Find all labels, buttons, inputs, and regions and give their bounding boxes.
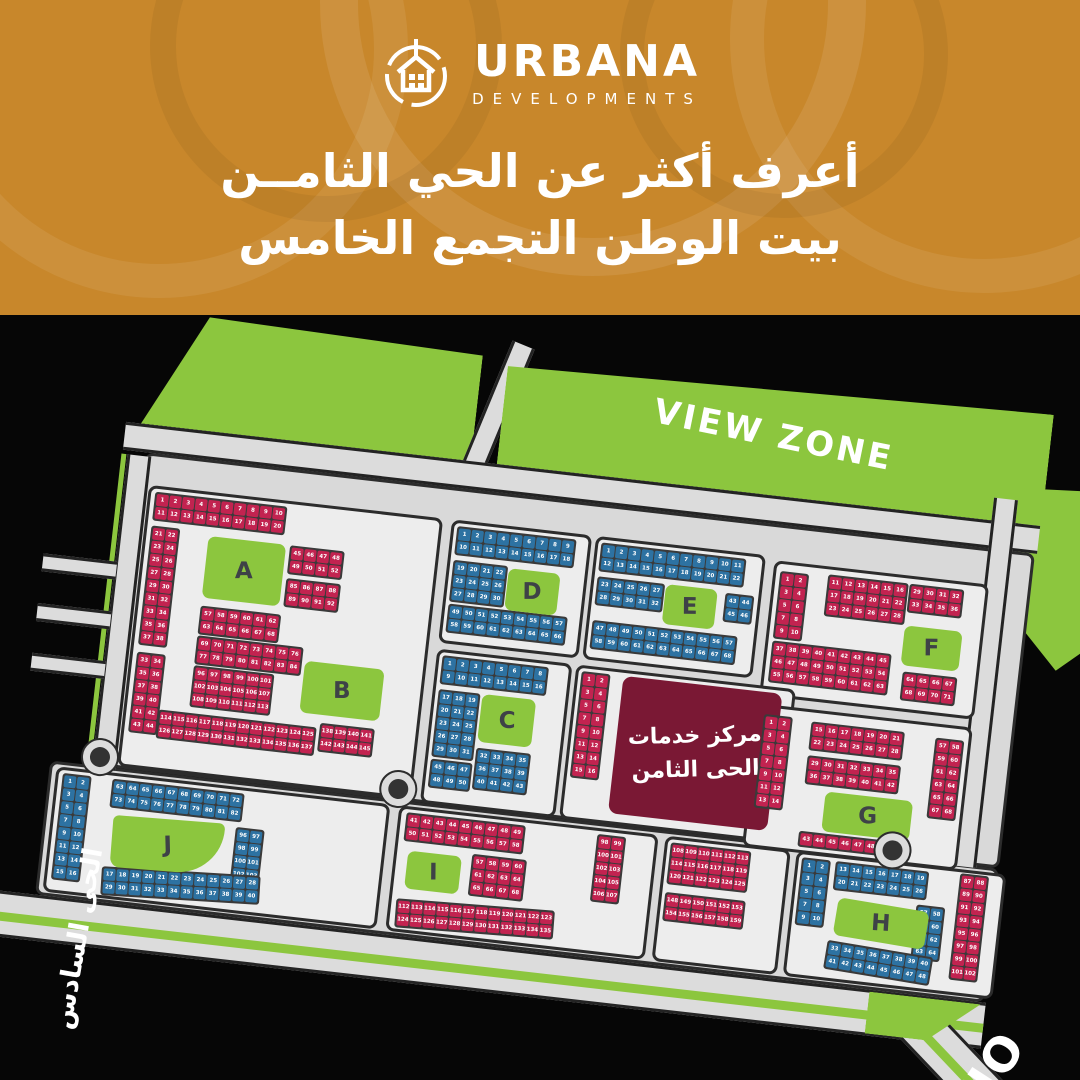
plot-cell: 26 — [220, 875, 233, 888]
plot-cell: 139 — [334, 726, 347, 739]
plot-cell: 123 — [275, 725, 288, 738]
plot-cell: 68 — [264, 628, 277, 641]
plot-cell: 2 — [794, 575, 807, 588]
plot-cell: 32 — [847, 762, 860, 775]
zone-label: H — [871, 910, 892, 937]
plot-cell: 6 — [666, 552, 679, 565]
plot-cell: 20 — [438, 704, 451, 717]
plot-cell: 107 — [605, 889, 618, 902]
plot-cell: 106 — [592, 888, 605, 901]
plot-cell: 112 — [723, 850, 736, 863]
plot-cell: 60 — [240, 612, 253, 625]
plot-cell: 64 — [669, 644, 682, 657]
map-world: VIEW ZONE — [0, 315, 1059, 1080]
plot-cell: 13 — [573, 751, 586, 764]
plot-cell: 81 — [215, 806, 228, 819]
plot-cell: 63 — [656, 642, 669, 655]
plot-cell: 7 — [679, 553, 692, 566]
plot-cell: 118 — [722, 863, 735, 876]
plot-cell: 12 — [770, 782, 783, 795]
plot-cell: 37 — [820, 772, 833, 785]
plot-cell: 120 — [668, 870, 681, 883]
plot-cell: 16 — [219, 514, 232, 527]
plot-cell: 44 — [739, 597, 752, 610]
plot-cell: 22 — [165, 529, 178, 542]
plot-cell: 81 — [248, 656, 261, 669]
plot-cell: 99 — [248, 844, 261, 857]
plot-cell: 117 — [462, 906, 475, 919]
plot-cell: 64 — [510, 873, 523, 886]
plot-cell: 4 — [641, 549, 654, 562]
zone-label: J — [163, 832, 172, 858]
plot-cell: 4 — [814, 874, 827, 887]
plot-cell: 63 — [113, 781, 126, 794]
plot-cell: 35 — [853, 946, 867, 960]
plot-cell: 58 — [809, 673, 822, 686]
plot-cell: 38 — [786, 644, 799, 657]
plot-cell: 71 — [941, 691, 954, 704]
plot-cell: 26 — [912, 885, 925, 898]
plot-cell: 70 — [928, 689, 941, 702]
plot-cell: 126 — [422, 915, 435, 928]
plot-cell: 32 — [157, 594, 170, 607]
plot-cell: 16 — [534, 550, 547, 563]
plot-cell: 101 — [246, 856, 259, 869]
plot-cell: 28 — [461, 733, 474, 746]
plot-cell: 82 — [261, 658, 274, 671]
plot-cell: 117 — [198, 716, 211, 729]
plot-cell: 43 — [800, 833, 813, 846]
plot-cell: 4 — [497, 533, 510, 546]
plot-cell: 35 — [180, 886, 193, 899]
plot-cell: 36 — [155, 620, 168, 633]
plot-cell: 115 — [436, 904, 449, 917]
plot-cell: 76 — [288, 648, 301, 661]
plot-cell: 55 — [770, 668, 783, 681]
plot-cell: 14 — [508, 547, 521, 560]
plot-cell: 15 — [206, 513, 219, 526]
plot-cell: 23 — [874, 881, 887, 894]
plot-cell: 128 — [448, 918, 461, 931]
plot-cell: 7 — [760, 755, 773, 768]
plot-cell: 18 — [116, 869, 129, 882]
plot-cell: 100 — [965, 954, 978, 967]
plot-cell: 45 — [876, 654, 889, 667]
plot-cell: 91 — [311, 596, 324, 609]
plot-cell: 46 — [737, 609, 750, 622]
plot-cell: 9 — [561, 540, 574, 553]
plot-cell: 128 — [184, 727, 197, 740]
plot-cell: 5 — [60, 801, 73, 814]
plot-cell: 53 — [501, 612, 514, 625]
plot-cell: 58 — [592, 635, 605, 648]
plot-cell: 27 — [650, 584, 663, 597]
plot-cell: 33 — [860, 763, 873, 776]
plot-cell: 16 — [893, 584, 906, 597]
plot-cell: 64 — [903, 674, 916, 687]
plot-cell: 38 — [833, 773, 846, 786]
plot-cell: 22 — [811, 737, 824, 750]
plot-cell: 136 — [287, 739, 300, 752]
plot-cell: 91 — [958, 901, 971, 914]
plot-cell: 25 — [624, 581, 637, 594]
plot-cell: 152 — [717, 900, 730, 913]
plot-cell: 8 — [246, 504, 259, 517]
plot-cell: 30 — [490, 592, 503, 605]
plot-cell: 49 — [510, 826, 523, 839]
plot-cell: 9 — [57, 827, 70, 840]
plot-cell: 7 — [233, 503, 246, 516]
plot-cell: 100 — [246, 673, 259, 686]
plot-cell: 29 — [910, 586, 923, 599]
plot-cell: 25 — [207, 875, 220, 888]
plot-cell: 65 — [470, 882, 483, 895]
plot-cell: 30 — [115, 882, 128, 895]
plot-cell: 23 — [436, 717, 449, 730]
plot-cell: 112 — [397, 900, 410, 913]
plot-cell: 50 — [406, 827, 419, 840]
plot-cell: 122 — [527, 911, 540, 924]
plot-cell: 21 — [152, 528, 165, 541]
plot-cell: 130 — [209, 730, 222, 743]
plot-cell: 39 — [514, 767, 527, 780]
plot-cell: 54 — [457, 833, 470, 846]
zone-F: F — [901, 625, 963, 671]
plot-cell: 157 — [703, 911, 716, 924]
plot-cell: 97 — [207, 669, 220, 682]
plot-cell: 154 — [664, 907, 677, 920]
plot-cell: 18 — [560, 553, 573, 566]
plot-cell: 30 — [159, 581, 172, 594]
plot-cell: 12 — [480, 675, 493, 688]
plot-cell: 36 — [475, 763, 488, 776]
plot-cluster: 323334353637383940414243 — [472, 748, 531, 796]
plot-cell: 109 — [684, 846, 697, 859]
plot-cell: 40 — [858, 776, 871, 789]
plot-cell: 72 — [229, 794, 242, 807]
plot-cell: 41 — [871, 778, 884, 791]
plot-cell: 96 — [968, 929, 981, 942]
plot-cell: 74 — [262, 645, 275, 658]
plot-cell: 35 — [935, 602, 948, 615]
plot-cell: 39 — [904, 955, 918, 969]
plot-cell: 10 — [456, 541, 469, 554]
plot-cell: 8 — [591, 713, 604, 726]
plot-cell: 4 — [776, 731, 789, 744]
plot-cell: 13 — [493, 676, 506, 689]
urbana-house-logo-icon — [378, 34, 454, 114]
plot-cell: 11 — [829, 577, 842, 590]
plot-cell: 6 — [508, 665, 521, 678]
plot-cell: 41 — [132, 705, 145, 718]
plot-cell: 41 — [407, 814, 420, 827]
zone-A: A — [202, 536, 287, 606]
plot-cell: 57 — [201, 608, 214, 621]
plot-cell: 67 — [496, 885, 509, 898]
plot-cell: 55 — [527, 615, 540, 628]
plot-cell: 57 — [552, 618, 565, 631]
plot-cell: 53 — [671, 631, 684, 644]
plot-cell: 29 — [433, 743, 446, 756]
plot-cell: 51 — [645, 628, 658, 641]
plot-cell: 76 — [150, 798, 163, 811]
plot-cell: 14 — [626, 561, 639, 574]
plot-cell: 39 — [799, 646, 812, 659]
plot-cell: 2 — [815, 861, 828, 874]
plot-cell: 50 — [632, 627, 645, 640]
plot-cell: 59 — [605, 637, 618, 650]
plot-cell: 58 — [949, 741, 962, 754]
plot-cell: 12 — [482, 544, 495, 557]
plot-cell: 49 — [289, 560, 302, 573]
plot-cell: 64 — [525, 628, 538, 641]
plot-cell: 23 — [453, 575, 466, 588]
plot-cell: 15 — [572, 764, 585, 777]
plot-cell: 74 — [124, 795, 137, 808]
plot-cell: 18 — [840, 591, 853, 604]
plot-cell: 6 — [813, 887, 826, 900]
plot-cell: 8 — [789, 613, 802, 626]
plot-cell: 32 — [648, 597, 661, 610]
plot-cell: 77 — [196, 650, 209, 663]
plot-cell: 135 — [539, 925, 552, 938]
plot-cell: 99 — [233, 672, 246, 685]
plot-cell: 75 — [137, 797, 150, 810]
plot-cell: 5 — [495, 663, 508, 676]
plot-cell: 135 — [274, 738, 287, 751]
plot-cell: 62 — [946, 767, 959, 780]
plot-cell: 32 — [141, 884, 154, 897]
plot-cell: 107 — [258, 688, 271, 701]
plot-cell: 106 — [245, 686, 258, 699]
plot-cell: 53 — [862, 666, 875, 679]
plot-cell: 40 — [146, 694, 159, 707]
plot-cell: 55 — [470, 835, 483, 848]
plot-cell: 20 — [877, 731, 890, 744]
plot-cell: 17 — [232, 516, 245, 529]
plot-cell: 5 — [579, 699, 592, 712]
zone-C: C — [477, 694, 536, 748]
plot-cell: 37 — [879, 951, 893, 965]
plot-cell: 140 — [347, 728, 360, 741]
plot-cell: 23 — [181, 873, 194, 886]
plot-cell: 7 — [798, 898, 811, 911]
plot-cell: 67 — [708, 648, 721, 661]
plot-cell: 69 — [915, 688, 928, 701]
plot-cell: 62 — [484, 870, 497, 883]
headline: أعرف أكثر عن الحي الثامــن بيت الوطن الت… — [0, 138, 1080, 271]
plot-cell: 116 — [449, 905, 462, 918]
plot-cell: 61 — [630, 639, 643, 652]
plot-cell: 28 — [160, 568, 173, 581]
plot-cell: 94 — [969, 916, 982, 929]
plot-cell: 113 — [410, 901, 423, 914]
plot-cell: 36 — [193, 887, 206, 900]
plot-cell: 52 — [849, 664, 862, 677]
plot-cell: 15 — [862, 866, 875, 879]
plot-cell: 56 — [483, 836, 496, 849]
plot-cell: 97 — [249, 831, 262, 844]
stub-road — [30, 653, 106, 679]
plot-cell: 1 — [582, 673, 595, 686]
plot-cell: 11 — [467, 673, 480, 686]
zone-label: I — [429, 859, 438, 885]
plot-cell: 3 — [484, 531, 497, 544]
plot-cell: 148 — [666, 894, 679, 907]
plot-cell: 70 — [203, 791, 216, 804]
plot-cell: 14 — [868, 581, 881, 594]
plot-cell: 121 — [250, 722, 263, 735]
plot-cell: 120 — [501, 909, 514, 922]
plot-cell: 32 — [477, 750, 490, 763]
plot-cell: 69 — [191, 790, 204, 803]
zone-label: A — [235, 558, 253, 584]
plot-cell: 52 — [488, 610, 501, 623]
plot-cell: 4 — [594, 688, 607, 701]
headline-line1: أعرف أكثر عن الحي الثامــن — [0, 138, 1080, 205]
plot-cell: 5 — [778, 599, 791, 612]
plot-cell: 12 — [842, 578, 855, 591]
plot-cell: 68 — [902, 687, 915, 700]
plot-cell: 23 — [598, 578, 611, 591]
plot-cell: 119 — [488, 908, 501, 921]
plot-cell: 68 — [721, 650, 734, 663]
plot-cell: 40 — [812, 647, 825, 660]
plot-cell: 19 — [914, 872, 927, 885]
plot-cell: 159 — [729, 914, 742, 927]
plot-cell: 79 — [222, 653, 235, 666]
plot-cell: 9 — [576, 725, 589, 738]
plot-cell: 111 — [230, 698, 243, 711]
zone-label: E — [682, 594, 698, 620]
plot-cell: 11 — [56, 840, 69, 853]
plot-cell: 15 — [519, 679, 532, 692]
plot-cluster: 192021222324252627282930 — [449, 560, 508, 608]
plot-cell: 60 — [928, 921, 941, 934]
plot-cell: 42 — [884, 779, 897, 792]
plot-cell: 65 — [930, 791, 943, 804]
plot-cell: 144 — [345, 741, 358, 754]
plot-cell: 153 — [730, 902, 743, 915]
brand-lockup: URBANA DEVELOPMENTS — [0, 34, 1080, 114]
plot-cell: 57 — [496, 838, 509, 851]
plot-cell: 58 — [486, 858, 499, 871]
plot-cell: 4 — [195, 498, 208, 511]
plot-cell: 1 — [781, 573, 794, 586]
plot-cell: 35 — [136, 667, 149, 680]
plot-cell: 11 — [757, 781, 770, 794]
plot-cell: 30 — [446, 744, 459, 757]
plot-cell: 22 — [493, 566, 506, 579]
plot-cell: 2 — [777, 718, 790, 731]
plot-cell: 112 — [243, 699, 256, 712]
plot-cell: 20 — [142, 871, 155, 884]
plot-cell: 125 — [301, 728, 314, 741]
plot-cell: 114 — [670, 857, 683, 870]
plot-cell: 18 — [901, 871, 914, 884]
plot-cell: 60 — [617, 638, 630, 651]
plot-cell: 92 — [971, 903, 984, 916]
plot-cell: 63 — [512, 626, 525, 639]
plot-cell: 18 — [452, 693, 465, 706]
plot-cell: 57 — [473, 856, 486, 869]
plot-cell: 65 — [916, 675, 929, 688]
plot-cell: 51 — [315, 563, 328, 576]
zone-label: G — [858, 803, 877, 829]
plot-cluster: 4546474849505152 — [287, 545, 345, 580]
plot-cell: 33 — [138, 654, 151, 667]
plot-cell: 2 — [76, 777, 89, 790]
plot-cell: 11 — [154, 507, 167, 520]
plot-cluster: 43444546 — [722, 593, 754, 625]
plot-cell: 17 — [838, 727, 851, 740]
header-banner: URBANA DEVELOPMENTS أعرف أكثر عن الحي ال… — [0, 0, 1080, 315]
plot-cell: 18 — [678, 566, 691, 579]
plot-cell: 29 — [808, 757, 821, 770]
plot-cell: 9 — [797, 911, 810, 924]
plot-cell: 14 — [193, 511, 206, 524]
plot-cell: 10 — [272, 507, 285, 520]
plot-cell: 49 — [810, 660, 823, 673]
plot-cell: 66 — [238, 625, 251, 638]
plot-cell: 31 — [635, 596, 648, 609]
plot-cell: 34 — [503, 753, 516, 766]
plot-cell: 15 — [880, 582, 893, 595]
plot-cell: 46 — [444, 762, 457, 775]
plot-cell: 134 — [526, 924, 539, 937]
plot-cell: 98 — [220, 670, 233, 683]
plot-cell: 13 — [495, 546, 508, 559]
plot-cell: 101 — [609, 850, 622, 863]
plot-cell: 51 — [475, 609, 488, 622]
plot-cell: 28 — [464, 589, 477, 602]
plot-cell: 45 — [431, 761, 444, 774]
plot-cell: 22 — [464, 707, 477, 720]
plot-cell: 40 — [245, 890, 258, 903]
plot-cell: 12 — [167, 508, 180, 521]
plot-cell: 20 — [835, 876, 848, 889]
plot-cell: 131 — [222, 732, 235, 745]
plot-cell: 60 — [947, 754, 960, 767]
plot-cell: 9 — [759, 768, 772, 781]
plot-cell: 90 — [298, 595, 311, 608]
zone-I: I — [404, 851, 462, 895]
plot-cell: 59 — [460, 620, 473, 633]
plot-cell: 122 — [694, 873, 707, 886]
plot-cell: 88 — [326, 585, 339, 598]
plot-cell: 9 — [705, 556, 718, 569]
plot-cell: 48 — [498, 825, 511, 838]
brand-subtitle: DEVELOPMENTS — [472, 90, 702, 108]
plot-cell: 62 — [499, 625, 512, 638]
plot-cell: 27 — [233, 876, 246, 889]
plot-cluster: 2930313233343536 — [907, 584, 965, 619]
plot-cell: 96 — [236, 829, 249, 842]
plot-cell: 6 — [592, 701, 605, 714]
plot-cell: 32 — [949, 590, 962, 603]
plot-cell: 49 — [443, 775, 456, 788]
plot-cell: 50 — [823, 661, 836, 674]
plot-cell: 34 — [150, 655, 163, 668]
plot-cell: 30 — [923, 587, 936, 600]
plot-cell: 142 — [319, 738, 332, 751]
plot-cell: 29 — [609, 593, 622, 606]
plot-cell: 71 — [216, 793, 229, 806]
plot-cell: 58 — [509, 839, 522, 852]
plot-cell: 41 — [825, 955, 839, 969]
plot-cell: 124 — [720, 876, 733, 889]
plot-cell: 46 — [838, 837, 851, 850]
